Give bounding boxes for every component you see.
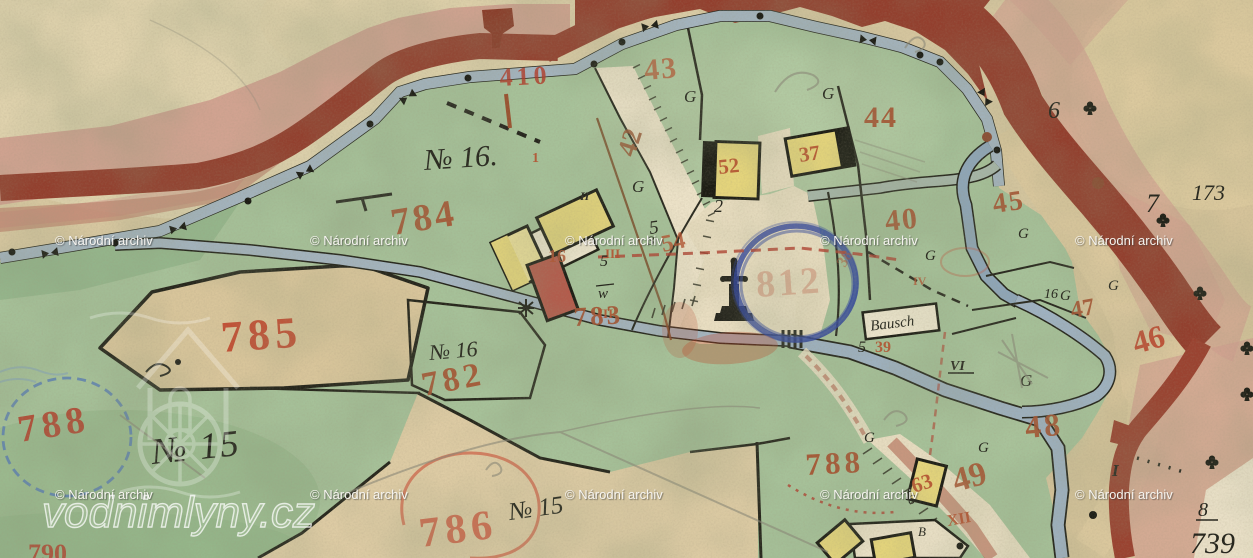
- svg-text:© Národní archiv: © Národní archiv: [565, 233, 663, 248]
- svg-text:© Národní archiv: © Národní archiv: [565, 487, 663, 502]
- svg-text:vodnimlyny.cz: vodnimlyny.cz: [42, 488, 315, 537]
- svg-text:© Národní archiv: © Národní archiv: [820, 487, 918, 502]
- svg-text:© Národní archiv: © Národní archiv: [310, 487, 408, 502]
- svg-text:© Národní archiv: © Národní archiv: [1075, 487, 1173, 502]
- svg-text:© Národní archiv: © Národní archiv: [55, 233, 153, 248]
- svg-text:© Národní archiv: © Národní archiv: [1075, 233, 1173, 248]
- svg-text:© Národní archiv: © Národní archiv: [310, 233, 408, 248]
- svg-text:© Národní archiv: © Národní archiv: [820, 233, 918, 248]
